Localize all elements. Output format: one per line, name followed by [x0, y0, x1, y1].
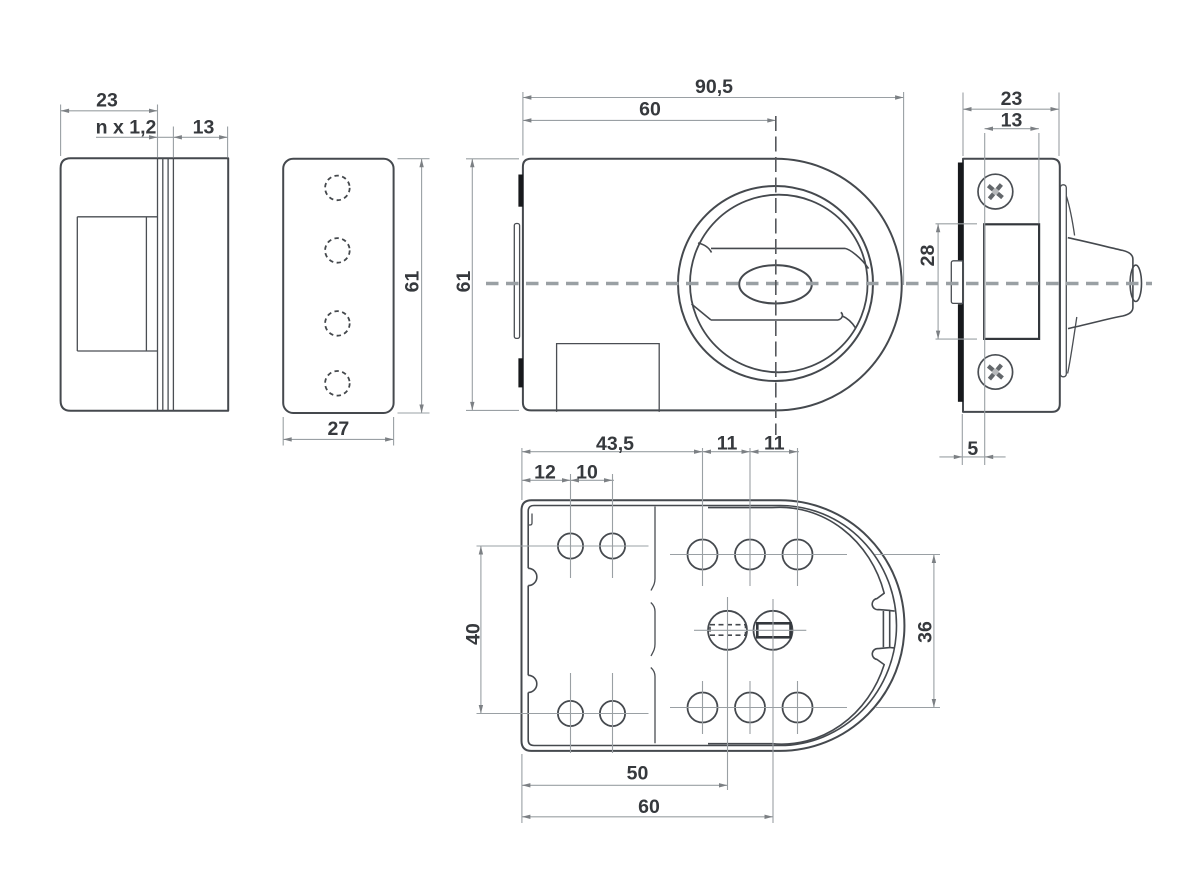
- svg-text:60: 60: [638, 796, 660, 818]
- svg-text:23: 23: [96, 90, 118, 112]
- svg-text:61: 61: [453, 271, 475, 293]
- svg-text:40: 40: [462, 623, 484, 645]
- svg-text:90,5: 90,5: [695, 76, 733, 98]
- svg-text:n x 1,2: n x 1,2: [96, 117, 157, 139]
- svg-text:13: 13: [1001, 109, 1023, 131]
- svg-text:10: 10: [576, 462, 598, 484]
- svg-text:28: 28: [917, 245, 939, 267]
- svg-text:43,5: 43,5: [596, 433, 634, 455]
- svg-text:61: 61: [402, 271, 424, 293]
- svg-text:12: 12: [534, 462, 556, 484]
- svg-text:13: 13: [193, 117, 215, 139]
- svg-text:11: 11: [717, 433, 738, 455]
- svg-text:5: 5: [967, 438, 978, 460]
- svg-text:11: 11: [764, 433, 785, 455]
- svg-text:36: 36: [915, 621, 937, 643]
- svg-text:27: 27: [328, 418, 350, 440]
- svg-text:60: 60: [639, 99, 661, 121]
- svg-text:23: 23: [1001, 88, 1023, 110]
- svg-text:50: 50: [627, 763, 649, 785]
